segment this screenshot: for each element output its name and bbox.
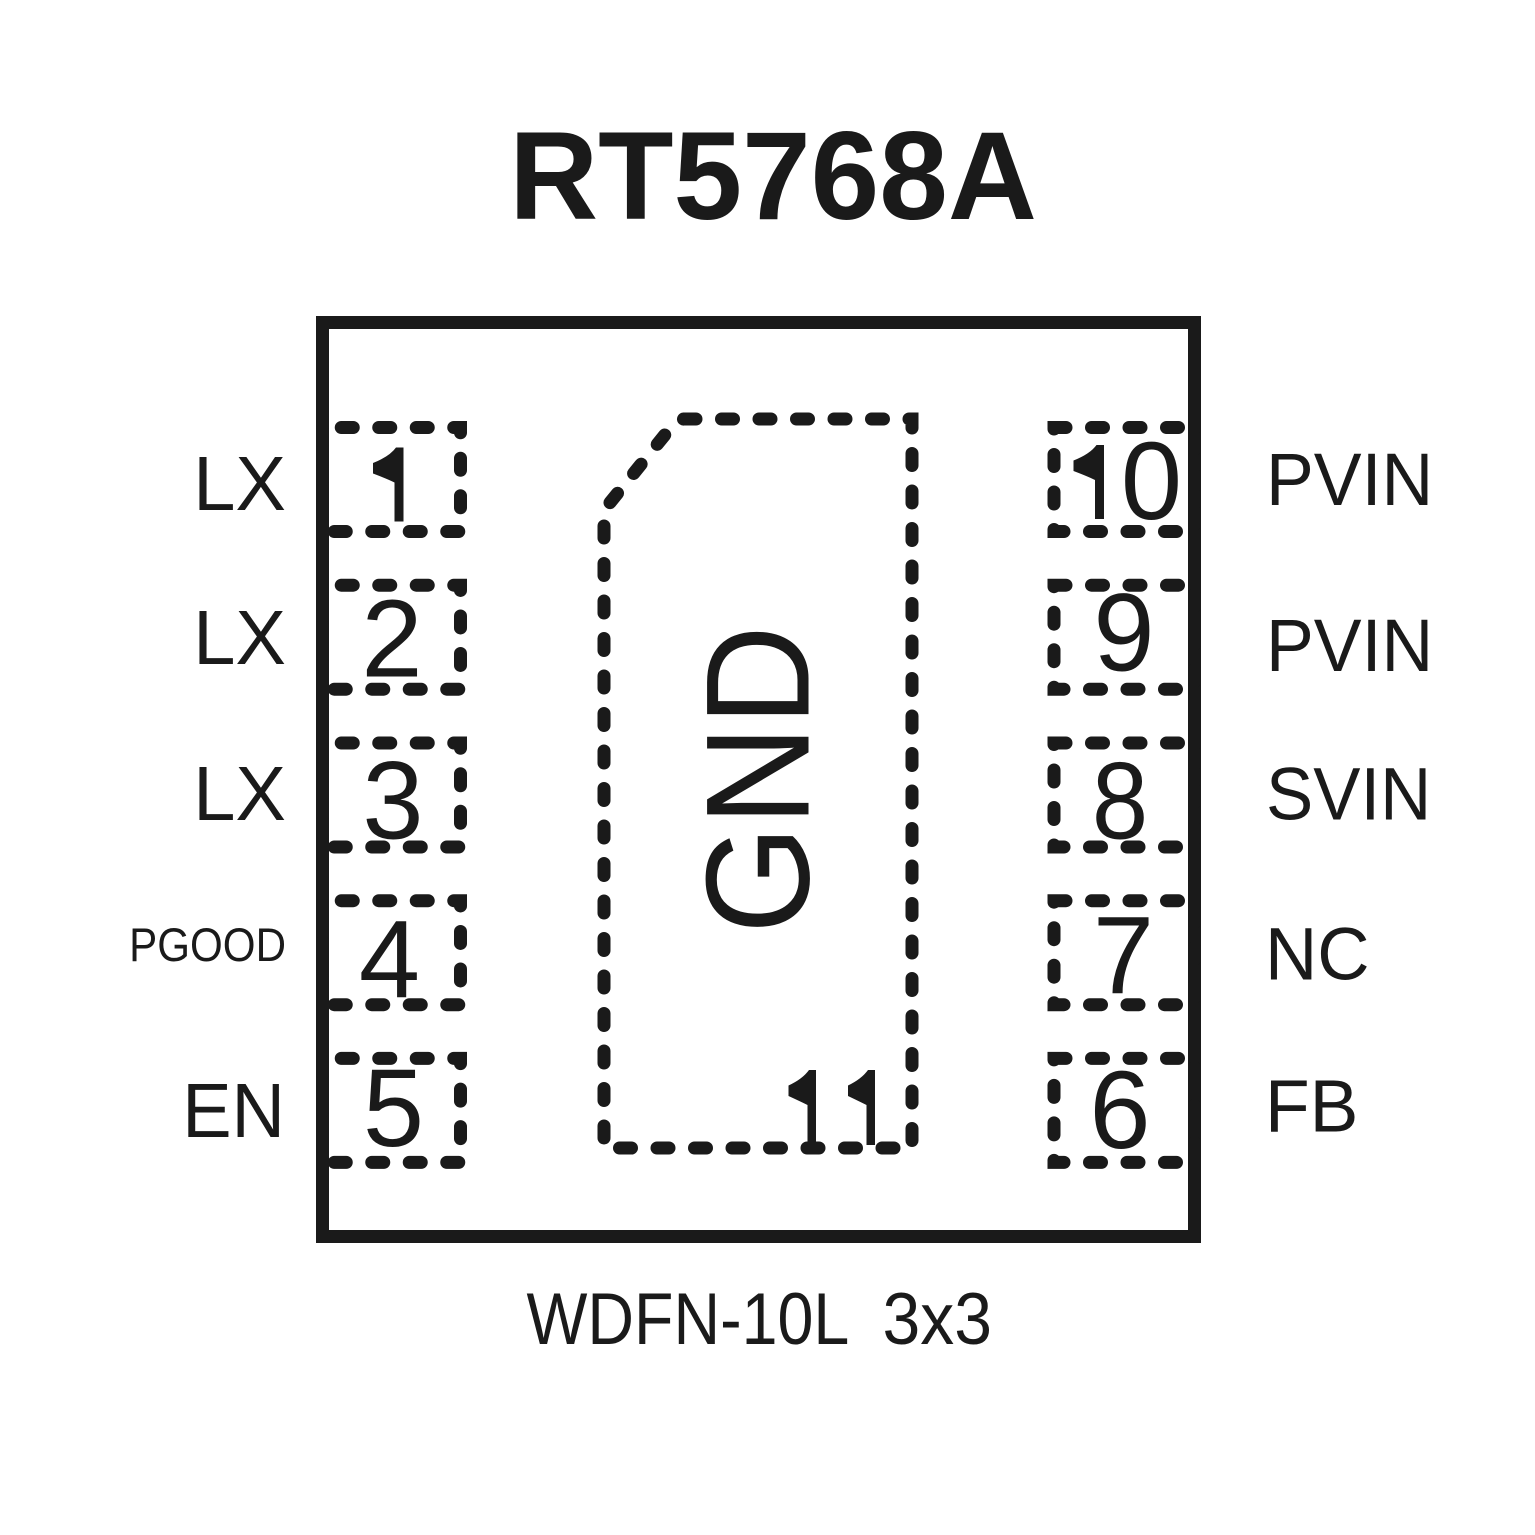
svg-text:3: 3: [362, 740, 423, 863]
svg-text:PGOOD: PGOOD: [129, 920, 286, 972]
svg-text:LX: LX: [193, 595, 286, 681]
svg-text:3x3: 3x3: [883, 1278, 992, 1360]
svg-text:PVIN: PVIN: [1266, 605, 1433, 687]
svg-text:EN: EN: [182, 1069, 285, 1155]
svg-text:PVIN: PVIN: [1266, 439, 1433, 521]
svg-text:9: 9: [1093, 572, 1154, 695]
svg-text:4: 4: [359, 898, 420, 1021]
svg-text:GND: GND: [676, 625, 841, 934]
svg-text:8: 8: [1092, 740, 1148, 863]
svg-text:SVIN: SVIN: [1266, 753, 1431, 836]
svg-text:6: 6: [1089, 1049, 1150, 1172]
svg-text:RT5768A: RT5768A: [509, 106, 1037, 246]
svg-text:2: 2: [361, 578, 422, 701]
svg-text:LX: LX: [193, 751, 286, 837]
svg-text:0: 0: [1121, 420, 1182, 543]
svg-text:WDFN-10L: WDFN-10L: [527, 1277, 850, 1360]
svg-text:7: 7: [1093, 895, 1154, 1018]
svg-text:5: 5: [363, 1047, 424, 1170]
svg-text:NC: NC: [1265, 913, 1370, 996]
svg-text:LX: LX: [193, 441, 286, 527]
svg-text:FB: FB: [1265, 1064, 1358, 1147]
